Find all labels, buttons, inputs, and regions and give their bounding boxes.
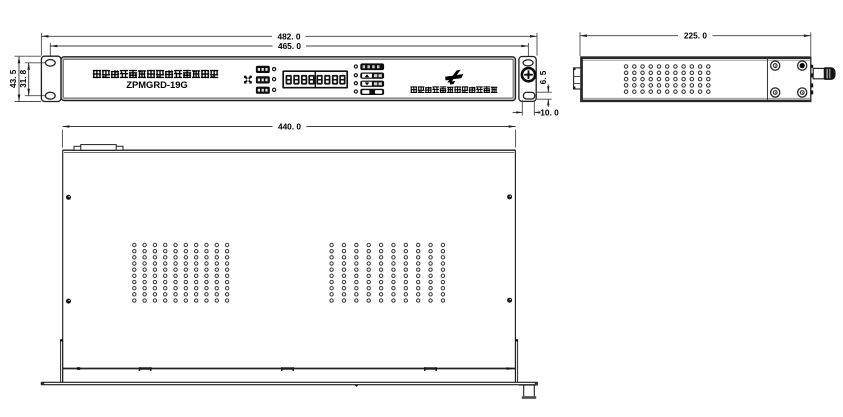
svg-text:440. 0: 440. 0 [278, 122, 301, 132]
svg-text:225. 0: 225. 0 [684, 31, 707, 41]
svg-text:465. 0: 465. 0 [278, 41, 301, 51]
svg-text:482. 0: 482. 0 [277, 31, 300, 41]
svg-text:ZPMGRD-19G: ZPMGRD-19G [126, 79, 187, 90]
svg-text:10. 0: 10. 0 [540, 107, 559, 117]
svg-text:6. 5: 6. 5 [538, 70, 548, 84]
svg-text:43. 5: 43. 5 [8, 69, 18, 88]
svg-text:31. 8: 31. 8 [19, 69, 28, 87]
